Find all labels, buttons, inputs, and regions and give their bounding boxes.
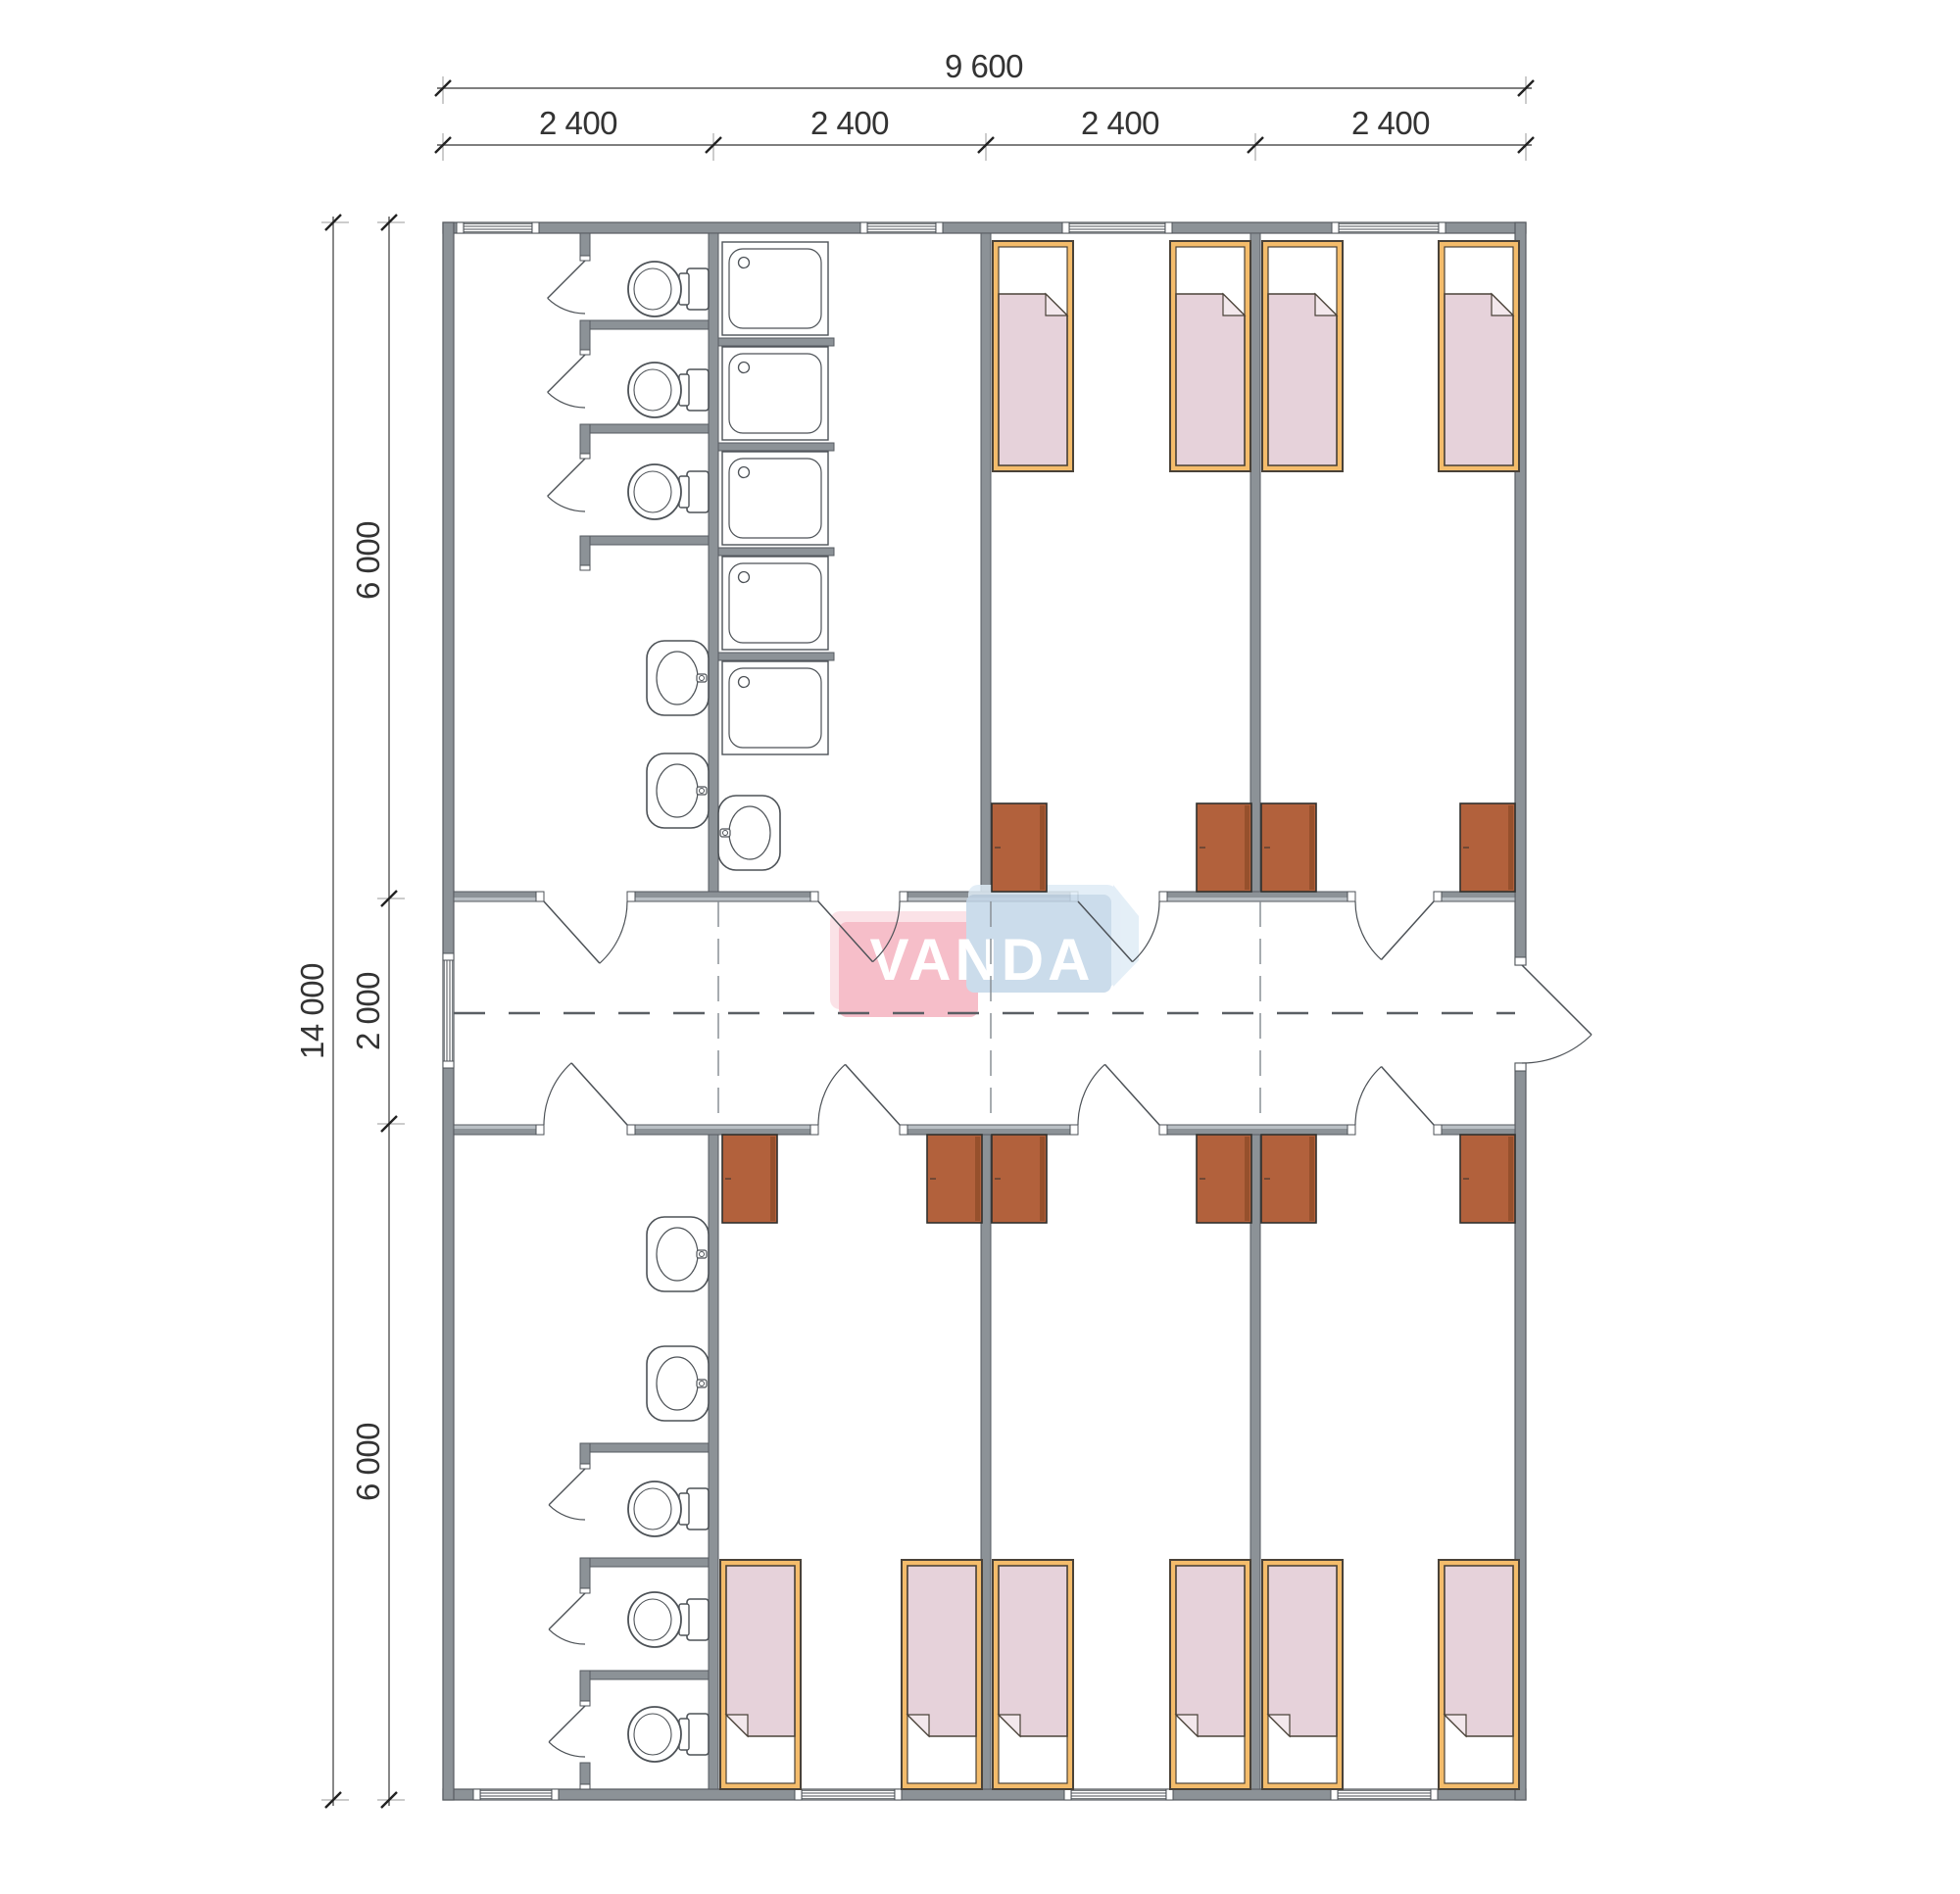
door-swing xyxy=(600,901,627,963)
stall-jamb-cap xyxy=(580,1701,590,1706)
toilet-bowl xyxy=(628,363,681,417)
stall-jamb-cap xyxy=(580,565,590,570)
shower-drain xyxy=(739,258,750,268)
interior-wall xyxy=(709,1135,718,1789)
door-jamb xyxy=(536,892,544,901)
door-leaf xyxy=(571,1063,627,1125)
corridor-wall-sill xyxy=(454,898,544,901)
toilet-tank xyxy=(687,1488,709,1530)
door-leaf xyxy=(1381,901,1434,959)
stall-door-swing xyxy=(549,1505,585,1520)
door-swing xyxy=(1355,1067,1381,1125)
toilet-bowl xyxy=(628,1707,681,1762)
corridor-wall xyxy=(1434,892,1515,898)
window-jamb xyxy=(1062,222,1069,233)
corridor-wall xyxy=(1159,1129,1355,1135)
shower-partition xyxy=(718,338,834,346)
corridor-wall xyxy=(454,892,544,898)
door-swing xyxy=(1078,1064,1104,1125)
stall-door-leaf xyxy=(549,1469,585,1505)
dim-total-height: 14 000 xyxy=(294,963,330,1059)
wardrobe-side xyxy=(1040,805,1045,890)
toilet-tank xyxy=(687,268,709,310)
toilet-bowl xyxy=(628,1481,681,1536)
stall-jamb-cap xyxy=(580,454,590,459)
toilet-bowl xyxy=(628,464,681,519)
window-jamb xyxy=(457,222,464,233)
stall-jamb-cap xyxy=(580,1588,590,1593)
interior-wall xyxy=(1250,233,1260,892)
stall-partition xyxy=(585,424,709,433)
exterior-door-leaf xyxy=(1522,965,1592,1035)
corridor-wall xyxy=(627,892,818,898)
exterior-door-swing xyxy=(1522,1035,1592,1063)
floor-plan: VANDA 9 600 2 400 2 400 2 400 2 400 14 0… xyxy=(0,0,1960,1894)
interior-wall xyxy=(1250,1135,1260,1789)
bed-blanket xyxy=(1176,294,1245,465)
wardrobe-side xyxy=(975,1137,980,1221)
corridor-wall-sill xyxy=(1434,1125,1515,1129)
vanda-logo: VANDA xyxy=(830,885,1139,1017)
window-jamb xyxy=(1439,222,1445,233)
door-jamb xyxy=(1515,957,1526,965)
window-jamb xyxy=(473,1789,480,1800)
wardrobe-side xyxy=(1245,805,1249,890)
interior-wall xyxy=(981,233,991,892)
wardrobe-side xyxy=(1040,1137,1045,1221)
stall-partition xyxy=(585,1558,709,1567)
door-swing xyxy=(818,1064,845,1125)
door-jamb xyxy=(1347,1125,1355,1135)
shower-partition xyxy=(718,548,834,556)
bed-blanket xyxy=(1268,1566,1337,1736)
shower-partition xyxy=(718,653,834,660)
stall-partition xyxy=(585,1671,709,1679)
corridor-wall xyxy=(627,1129,818,1135)
dim-module-1: 2 400 xyxy=(539,105,617,141)
corridor-wall-sill xyxy=(454,1125,544,1129)
corridor-wall-sill xyxy=(900,1125,1078,1129)
logo-text: VANDA xyxy=(870,927,1095,993)
corridor-wall xyxy=(1434,1129,1515,1135)
stall-partition xyxy=(585,320,709,329)
door-swing xyxy=(1355,901,1381,959)
bed-blanket xyxy=(907,1566,976,1736)
window-jamb xyxy=(795,1789,802,1800)
door-jamb xyxy=(1070,1125,1078,1135)
door-jamb xyxy=(627,892,635,901)
wardrobe-side xyxy=(1245,1137,1249,1221)
door-jamb xyxy=(810,892,818,901)
door-jamb xyxy=(1347,892,1355,901)
window-jamb xyxy=(860,222,867,233)
door-leaf xyxy=(845,1064,900,1125)
stall-door-leaf xyxy=(549,1593,585,1629)
door-jamb xyxy=(1434,1125,1442,1135)
stall-door-swing xyxy=(548,298,585,314)
sink-basin xyxy=(657,1357,698,1410)
wardrobe-side xyxy=(1309,1137,1314,1221)
window-jamb xyxy=(1431,1789,1438,1800)
stall-door-leaf xyxy=(548,355,585,392)
door-jamb xyxy=(900,1125,907,1135)
dim-module-4: 2 400 xyxy=(1351,105,1430,141)
window-jamb xyxy=(443,953,454,960)
door-jamb xyxy=(1434,892,1442,901)
dim-zone-corridor: 2 000 xyxy=(350,972,386,1050)
dim-module-2: 2 400 xyxy=(810,105,889,141)
window-jamb xyxy=(1331,1789,1338,1800)
door-leaf xyxy=(1381,1067,1434,1125)
toilet-tank xyxy=(687,1599,709,1640)
toilet-tank xyxy=(687,471,709,512)
door-jamb xyxy=(900,892,907,901)
corridor-wall-sill xyxy=(1434,898,1515,901)
bed-blanket xyxy=(1268,294,1337,465)
wardrobe-side xyxy=(770,1137,775,1221)
window-jamb xyxy=(1064,1789,1071,1800)
corridor-wall xyxy=(454,1129,544,1135)
door-jamb xyxy=(1515,1063,1526,1071)
toilet-tank xyxy=(687,369,709,411)
shower-drain xyxy=(739,572,750,583)
stall-jamb-cap xyxy=(580,256,590,261)
sink-basin xyxy=(657,652,698,704)
shower-drain xyxy=(739,363,750,373)
sink-basin xyxy=(729,806,770,859)
door-swing xyxy=(544,1063,571,1125)
window-jamb xyxy=(895,1789,902,1800)
stall-jamb-cap xyxy=(580,350,590,355)
logo-blue-corner xyxy=(1113,885,1139,987)
corridor-wall xyxy=(1159,892,1355,898)
dim-zone-lower: 6 000 xyxy=(350,1423,386,1501)
stall-door-swing xyxy=(549,1742,585,1757)
door-jamb xyxy=(1159,1125,1167,1135)
bed-blanket xyxy=(1445,294,1513,465)
bed-blanket xyxy=(726,1566,795,1736)
stall-door-leaf xyxy=(548,261,585,298)
toilet-tank xyxy=(687,1714,709,1755)
dim-total-width: 9 600 xyxy=(945,48,1023,84)
wardrobe-side xyxy=(1508,1137,1513,1221)
toilet-bowl xyxy=(628,1592,681,1647)
stall-jamb-cap xyxy=(580,1464,590,1469)
stall-door-swing xyxy=(548,392,585,408)
corridor-wall-sill xyxy=(1159,898,1355,901)
stall-door-leaf xyxy=(549,1706,585,1742)
door-jamb xyxy=(810,1125,818,1135)
window-jamb xyxy=(1165,222,1172,233)
stall-door-swing xyxy=(549,1629,585,1644)
toilet-bowl xyxy=(628,262,681,316)
shower-drain xyxy=(739,677,750,688)
bed-blanket xyxy=(1445,1566,1513,1736)
stall-door-leaf xyxy=(548,459,585,496)
bed-blanket xyxy=(999,294,1067,465)
corridor-wall-sill xyxy=(1159,1125,1355,1129)
sink-basin xyxy=(657,764,698,817)
sink-basin xyxy=(657,1228,698,1281)
door-jamb xyxy=(627,1125,635,1135)
bed-blanket xyxy=(999,1566,1067,1736)
shower-drain xyxy=(739,467,750,478)
wardrobe-side xyxy=(1309,805,1314,890)
shower-partition xyxy=(718,443,834,451)
wardrobe-side xyxy=(1508,805,1513,890)
stall-door-swing xyxy=(548,496,585,511)
corridor-wall-sill xyxy=(627,898,818,901)
corridor-wall xyxy=(900,1129,1078,1135)
window-jamb xyxy=(552,1789,559,1800)
window-jamb xyxy=(1332,222,1339,233)
dim-zone-upper: 6 000 xyxy=(350,521,386,600)
door-jamb xyxy=(1159,892,1167,901)
dim-module-3: 2 400 xyxy=(1081,105,1159,141)
bed-blanket xyxy=(1176,1566,1245,1736)
stall-partition xyxy=(585,536,709,545)
door-jamb xyxy=(536,1125,544,1135)
interior-wall xyxy=(709,233,718,892)
floor-plan-drawing: VANDA 9 600 2 400 2 400 2 400 2 400 14 0… xyxy=(0,0,1960,1894)
window-jamb xyxy=(936,222,943,233)
window-jamb xyxy=(1166,1789,1173,1800)
door-leaf xyxy=(1104,1064,1159,1125)
door-leaf xyxy=(544,901,600,963)
stall-partition xyxy=(585,1443,709,1452)
stall-jamb-cap xyxy=(580,1784,590,1789)
window-jamb xyxy=(443,1061,454,1068)
corridor-wall-sill xyxy=(627,1125,818,1129)
window-jamb xyxy=(532,222,539,233)
